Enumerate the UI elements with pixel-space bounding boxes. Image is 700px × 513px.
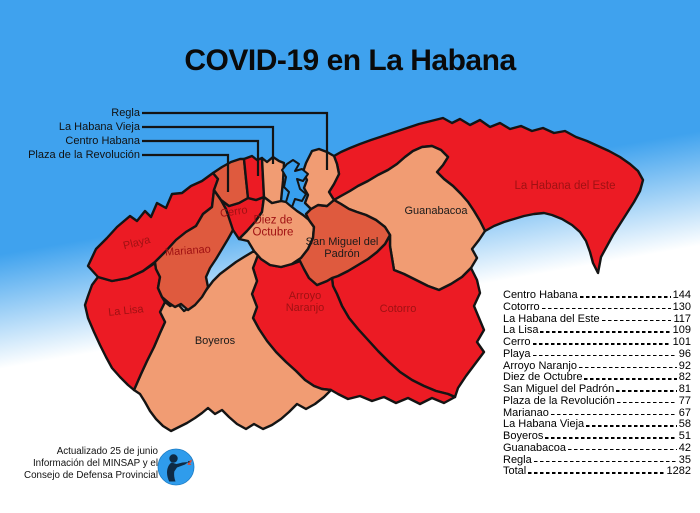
list-item-total: Total1282 xyxy=(503,466,691,478)
map-label-cotorro: Cotorro xyxy=(380,304,417,316)
dash-leader xyxy=(542,308,671,310)
list-item: Plaza de la Revolución77 xyxy=(503,396,691,408)
dash-leader xyxy=(584,378,676,380)
source-note-line1: Actualizado 25 de junio xyxy=(16,446,158,458)
list-item: San Miguel del Padrón81 xyxy=(503,384,691,396)
callout-plaza-de-la-revolucion: Plaza de la Revolución xyxy=(28,149,140,161)
region-centro-habana xyxy=(244,156,264,200)
infographic-canvas: COVID-19 en La Habana Regla La Habana Vi… xyxy=(0,0,700,513)
dash-leader xyxy=(528,472,664,474)
callout-la-habana-vieja: La Habana Vieja xyxy=(59,121,140,133)
region-regla xyxy=(303,149,339,209)
dash-leader xyxy=(586,425,677,427)
dash-leader xyxy=(617,402,677,404)
callout-centro-habana: Centro Habana xyxy=(65,135,140,147)
map-label-boyeros: Boyeros xyxy=(195,336,235,348)
callout-regla: Regla xyxy=(111,107,140,119)
map-label-diez-de-octubre: Diez de Octubre xyxy=(242,215,304,240)
list-item: La Lisa109 xyxy=(503,325,691,337)
dash-leader xyxy=(534,461,677,463)
dash-leader xyxy=(579,367,677,369)
map-label-la-habana-del-este: La Habana del Este xyxy=(514,180,615,192)
defense-council-logo xyxy=(157,447,197,487)
list-item: Regla35 xyxy=(503,455,691,467)
list-item: Cerro101 xyxy=(503,337,691,349)
dash-leader xyxy=(533,343,671,345)
map-label-guanabacoa: Guanabacoa xyxy=(405,206,468,218)
dash-leader xyxy=(602,320,672,322)
dash-leader xyxy=(533,355,677,357)
dash-leader xyxy=(616,390,676,392)
cases-list: Centro Habana144 Cotorro130 La Habana de… xyxy=(503,290,691,478)
map-label-san-miguel-del-padron: San Miguel del Padrón xyxy=(302,237,382,261)
list-item: Boyeros51 xyxy=(503,431,691,443)
source-note-line3: Consejo de Defensa Provincial xyxy=(16,470,158,482)
map-label-arroyo-naranjo: Arroyo Naranjo xyxy=(277,291,333,315)
source-note-line2: Información del MINSAP y el xyxy=(16,458,158,470)
dash-leader xyxy=(545,437,676,439)
source-note: Actualizado 25 de junio Información del … xyxy=(16,446,158,483)
dash-leader xyxy=(568,449,677,451)
dash-leader xyxy=(540,331,670,333)
dash-leader xyxy=(580,296,671,298)
dash-leader xyxy=(551,414,677,416)
list-item: Playa96 xyxy=(503,349,691,361)
list-item: Cotorro130 xyxy=(503,302,691,314)
list-item: Centro Habana144 xyxy=(503,290,691,302)
list-item: Guanabacoa42 xyxy=(503,443,691,455)
